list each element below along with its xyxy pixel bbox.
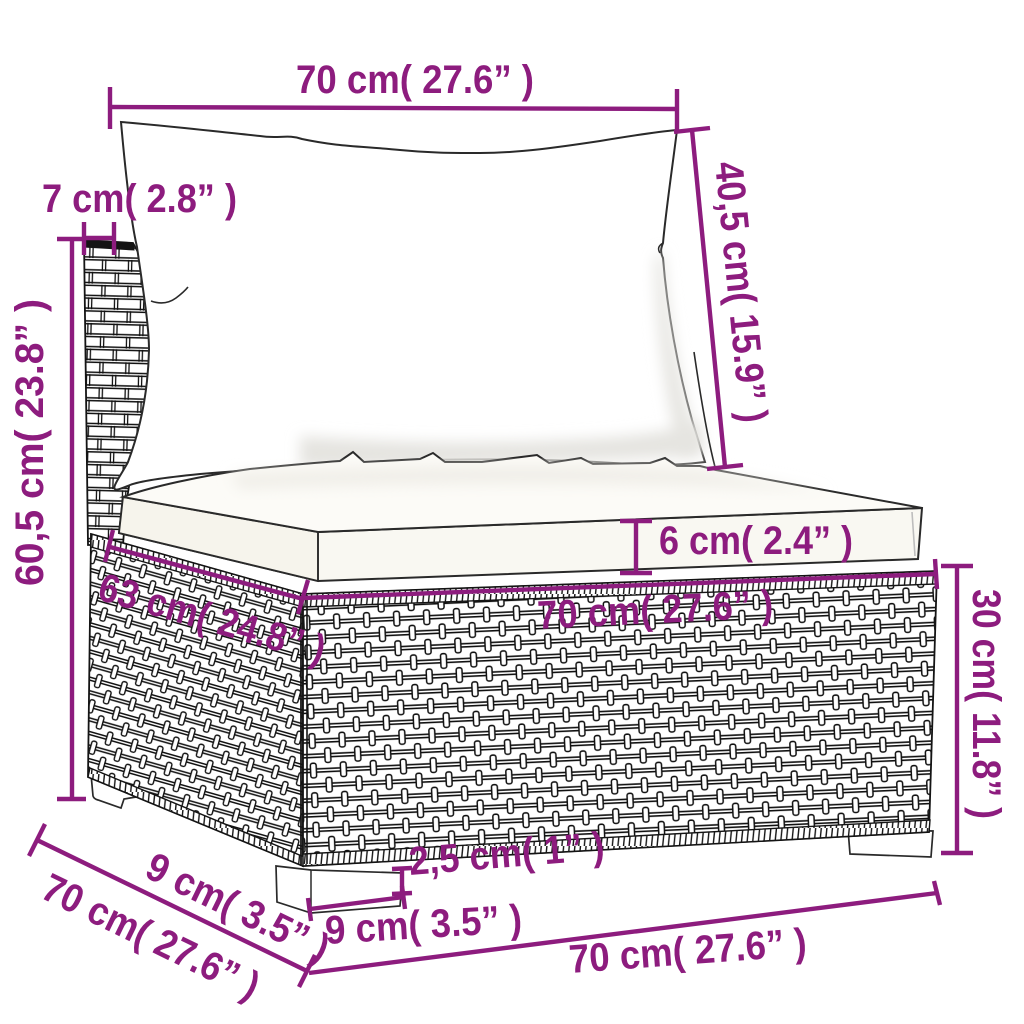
svg-text:30 cm( 11.8” ): 30 cm( 11.8” ) — [964, 589, 1008, 819]
svg-text:7 cm( 2.8” ): 7 cm( 2.8” ) — [42, 177, 237, 221]
svg-text:6 cm( 2.4” ): 6 cm( 2.4” ) — [659, 519, 853, 563]
svg-text:70 cm( 27.6” ): 70 cm( 27.6” ) — [296, 58, 534, 102]
svg-text:60,5 cm( 23.8” ): 60,5 cm( 23.8” ) — [8, 299, 52, 586]
